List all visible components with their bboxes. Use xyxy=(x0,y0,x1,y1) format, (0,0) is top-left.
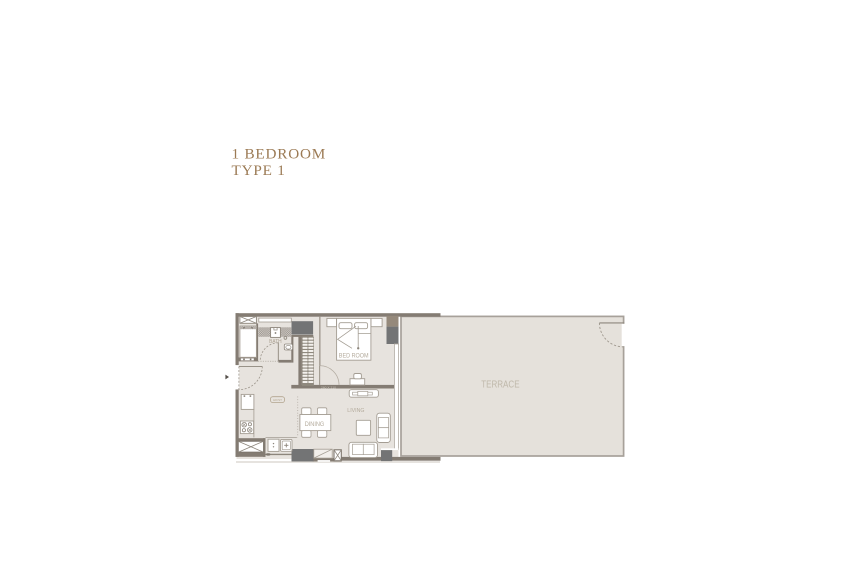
svg-text:DINING: DINING xyxy=(305,421,325,428)
svg-text:TERRACE: TERRACE xyxy=(481,380,520,391)
svg-text:1 BEDROOM: 1 BEDROOM xyxy=(232,145,327,162)
svg-text:LIVING: LIVING xyxy=(347,408,365,414)
svg-text:HK/ST: HK/ST xyxy=(273,398,282,402)
svg-text:BED ROOM: BED ROOM xyxy=(339,353,369,360)
svg-text:260 X 210: 260 X 210 xyxy=(321,385,337,389)
svg-text:TYPE 1: TYPE 1 xyxy=(232,162,286,179)
